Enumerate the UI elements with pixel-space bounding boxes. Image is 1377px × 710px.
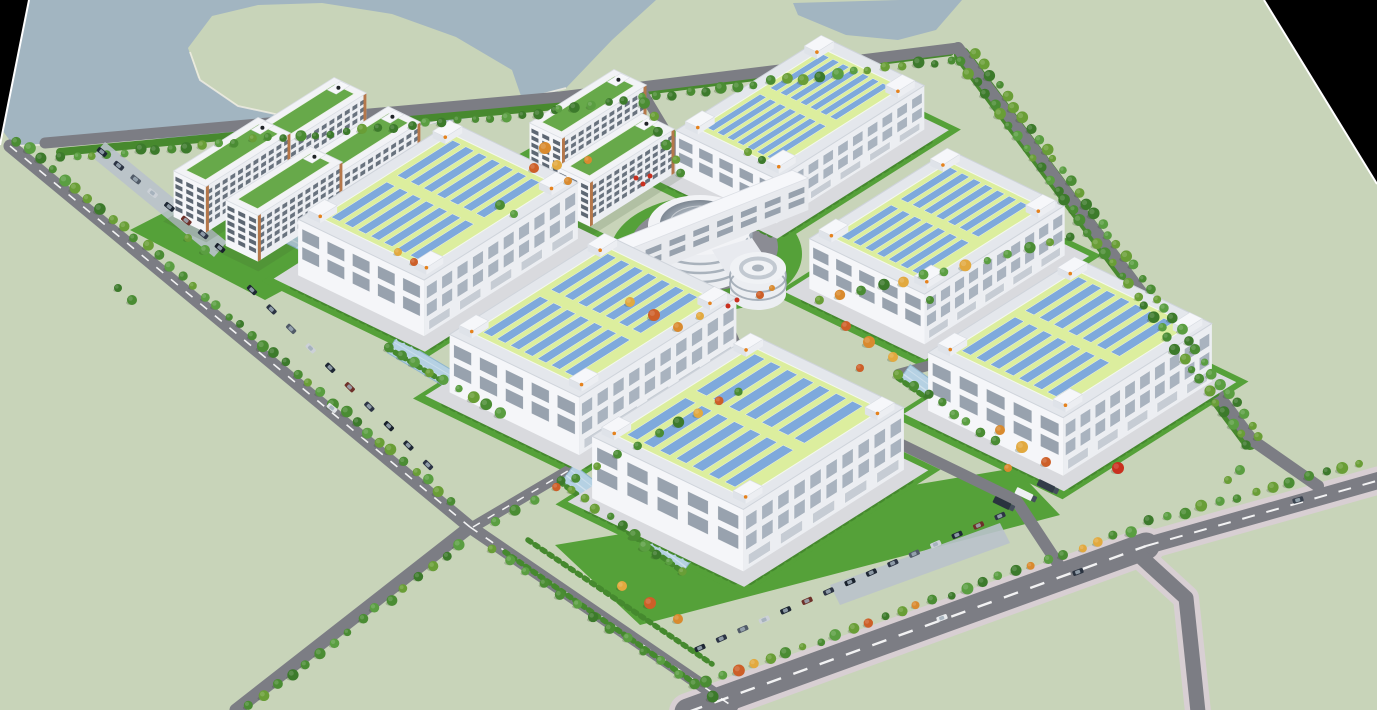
roof-accent [580, 383, 584, 387]
roof-accent [443, 135, 447, 139]
roof-accent [876, 412, 880, 416]
facade-trim [672, 129, 675, 175]
roof-accent [550, 187, 554, 191]
roof-accent [1068, 272, 1072, 276]
flower-bed [634, 176, 639, 181]
roof-accent [896, 89, 900, 93]
roof-equipment [260, 126, 264, 130]
roof-accent [830, 234, 834, 238]
roof-equipment [336, 86, 340, 90]
roof-accent [425, 266, 429, 270]
roof-accent [318, 215, 322, 219]
roof-accent [777, 165, 781, 169]
roof-accent [744, 348, 748, 352]
facade-trim [590, 181, 593, 227]
roof-accent [815, 50, 819, 54]
flower-bed [641, 182, 646, 187]
roof-accent [1064, 403, 1068, 407]
roof-accent [470, 330, 474, 334]
facade-trim [258, 214, 261, 262]
flower-bed [648, 174, 653, 179]
roof-accent [744, 495, 748, 499]
roof-accent [941, 163, 945, 167]
roof-equipment [644, 122, 648, 126]
roof-accent [948, 348, 952, 352]
roof-equipment [616, 78, 620, 82]
roof-equipment [312, 155, 316, 159]
roof-accent [1037, 209, 1041, 213]
site-rendering-canvas [0, 0, 1377, 710]
roof-equipment [390, 115, 394, 119]
flower-bed [726, 304, 731, 309]
roof-accent [612, 432, 616, 436]
roof-accent [708, 301, 712, 305]
flower-bed [735, 298, 740, 303]
roof-accent [696, 126, 700, 130]
industrial-park-rendering [0, 0, 1377, 710]
roof-accent [925, 280, 929, 284]
facade-trim [206, 185, 209, 233]
roof-accent [598, 248, 602, 252]
